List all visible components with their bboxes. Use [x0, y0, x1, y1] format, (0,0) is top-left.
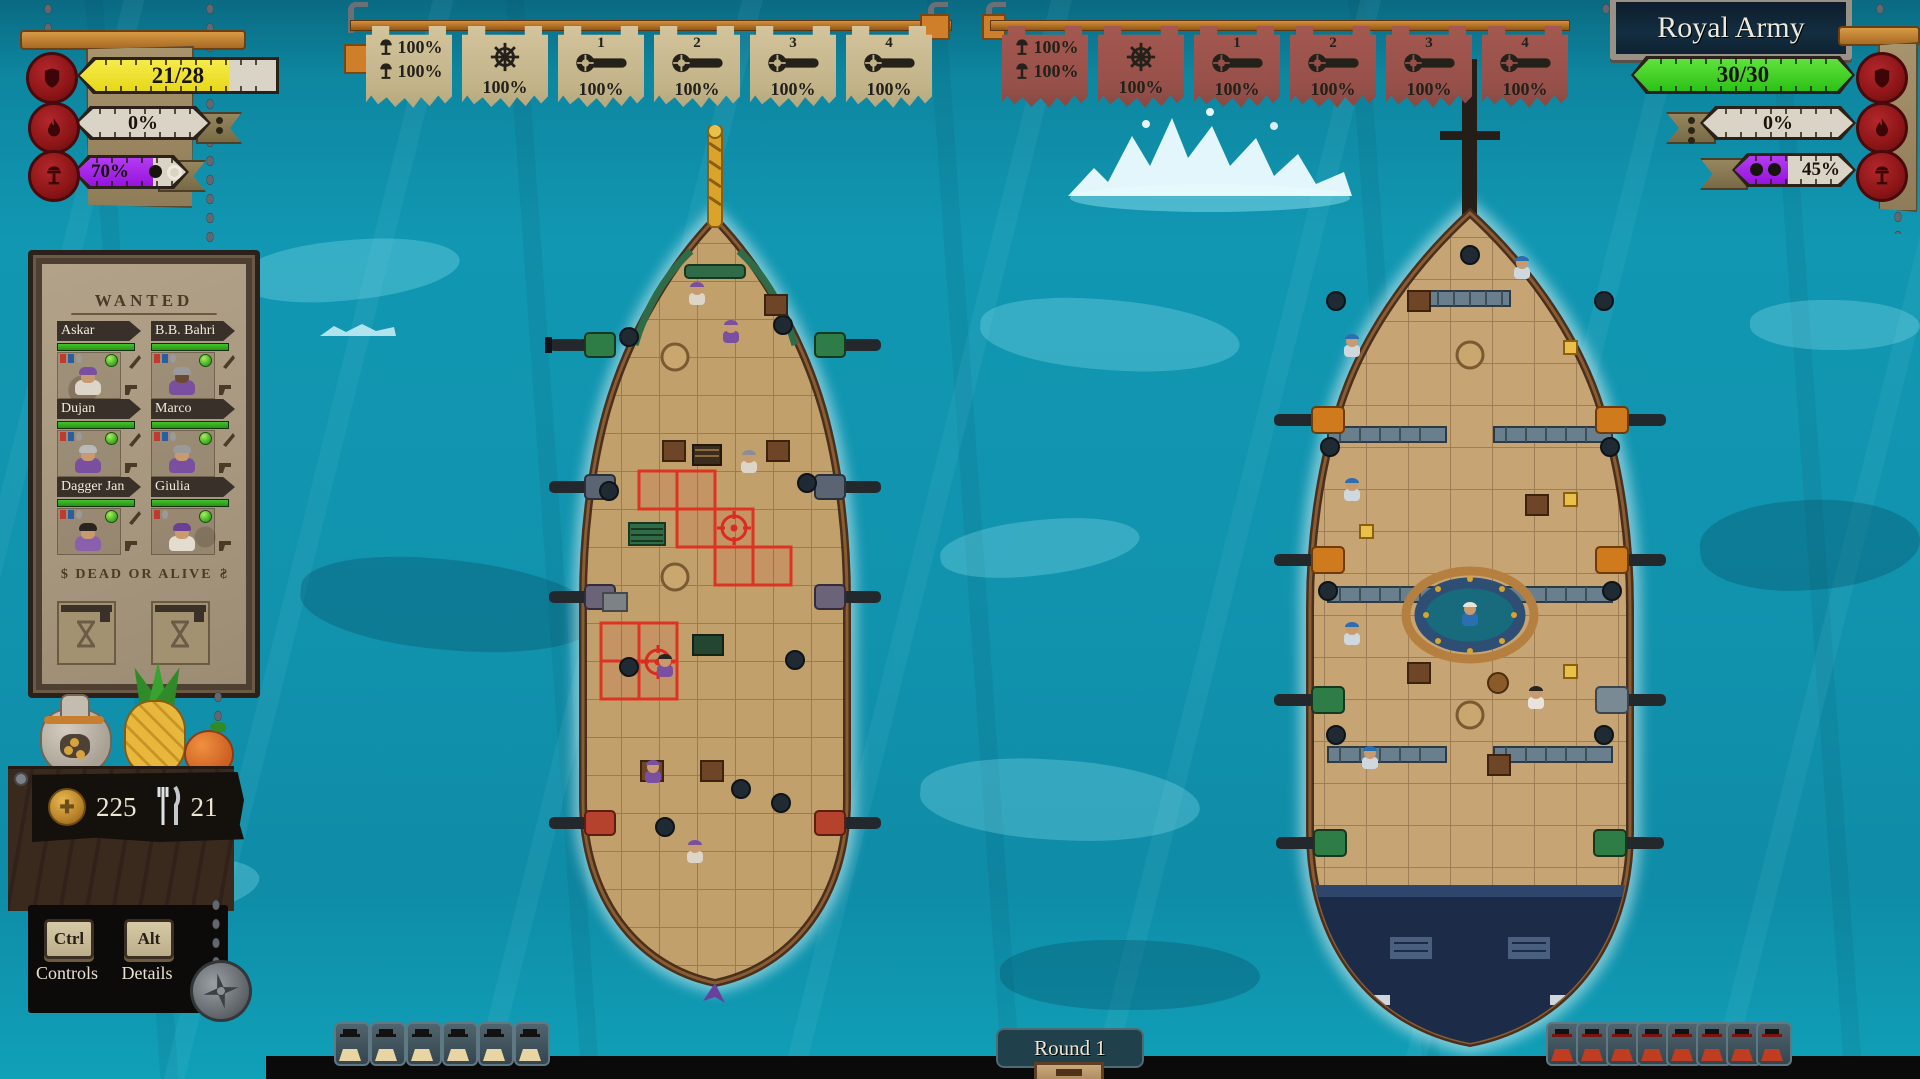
- hull-bar-value: 21/28: [77, 57, 279, 94]
- crew-portrait: [167, 519, 197, 551]
- cannon-icon: [1305, 52, 1361, 74]
- hull-bar-value: 30/30: [1631, 56, 1855, 94]
- crew-hp-bar: [151, 343, 229, 351]
- banner-value: 100%: [1034, 62, 1079, 80]
- compass-rose-icon: [197, 967, 244, 1014]
- game-viewport: 21/28 0% 70% Royal Army: [0, 0, 1920, 1079]
- food-icon: [153, 785, 183, 829]
- ram-pip-filled: [1768, 163, 1781, 176]
- chain: [208, 896, 224, 966]
- cannon-icon: [765, 52, 821, 74]
- empty-bounty-slot: [57, 601, 116, 665]
- mast-icon: [376, 39, 396, 56]
- crew-status-orb: [199, 432, 212, 445]
- crew-weapon-icons: [215, 353, 239, 397]
- crew-portrait: [73, 441, 103, 473]
- pineapple: [118, 666, 188, 774]
- pistol-icon: [219, 385, 231, 395]
- cannon-number: 3: [1386, 35, 1472, 52]
- golden-bowsprit-mast: [708, 125, 722, 227]
- crew-medals: [60, 432, 82, 441]
- bounty-symbol: $: [218, 567, 227, 583]
- player-crew-slot: [406, 1022, 442, 1066]
- crew-card-marco[interactable]: Marco: [151, 399, 241, 475]
- banner-value: 100%: [771, 80, 816, 98]
- fire-bar-value: 0%: [1700, 106, 1856, 140]
- player-hull-bar: 21/28: [77, 57, 279, 94]
- banner-value: 100%: [1503, 80, 1548, 98]
- fire-bar-value: 0%: [75, 106, 211, 140]
- ram-seal-icon: [1856, 150, 1908, 202]
- cannon-number: 1: [1194, 35, 1280, 52]
- wooden-hanger: [20, 30, 246, 50]
- alt-keycap[interactable]: Alt: [124, 919, 174, 959]
- fire-seal-icon: [1856, 102, 1908, 154]
- wanted-title-underline: [71, 313, 217, 315]
- dagger-icon: [129, 511, 141, 525]
- crew-medals: [154, 510, 168, 519]
- shield-seal-icon: [26, 52, 78, 104]
- crew-card-askar[interactable]: Askar: [57, 321, 147, 397]
- banner-value: 100%: [398, 38, 443, 56]
- resource-panel: ✚ 225 21: [32, 772, 244, 842]
- cannon-number: 4: [846, 35, 932, 52]
- banner-value: 100%: [675, 80, 720, 98]
- player-crew-slot: [514, 1022, 550, 1066]
- enemy-faction-sign: Royal Army: [1610, 0, 1852, 60]
- controls-label: Controls: [22, 963, 112, 984]
- cannon-number: 4: [1482, 35, 1568, 52]
- crew-weapon-icons: [121, 353, 145, 397]
- crew-portrait: [73, 519, 103, 551]
- crew-name: B.B. Bahri: [151, 321, 235, 341]
- crew-status-orb: [105, 354, 118, 367]
- command-platform[interactable]: [1406, 571, 1534, 659]
- wanted-board: WANTED Askar B.B. Bahri: [28, 250, 260, 698]
- mast-icon: [1012, 39, 1032, 56]
- crew-name: Askar: [57, 321, 141, 341]
- hourglass-icon: [167, 619, 193, 649]
- cannon-icon: [861, 52, 917, 74]
- player-crew-slot: [370, 1022, 406, 1066]
- cannon-number: 2: [654, 35, 740, 52]
- banner-value: 100%: [483, 78, 528, 96]
- pistol-icon: [125, 385, 137, 395]
- dagger-icon: [129, 355, 141, 369]
- cannon-number: 2: [1290, 35, 1376, 52]
- cannon-icon: [573, 52, 629, 74]
- crew-card-giulia[interactable]: Giulia: [151, 477, 241, 553]
- dagger-icon: [223, 355, 235, 369]
- crew-name: Dujan: [57, 399, 141, 419]
- round-label: Round 1: [1034, 1036, 1106, 1061]
- ram-pip-filled: [149, 165, 162, 178]
- ram-pip-hollow: [167, 165, 182, 180]
- banner-value: 100%: [579, 80, 624, 98]
- crew-medals: [154, 432, 176, 441]
- empty-bounty-slot: [151, 601, 210, 665]
- wanted-title: WANTED: [33, 291, 255, 311]
- treasure-chest[interactable]: [1488, 673, 1508, 693]
- enemy-crew-slot: [1756, 1022, 1792, 1066]
- player-fire-bar: 0%: [75, 106, 211, 140]
- cannon-icon: [669, 52, 725, 74]
- cannon-number: 3: [750, 35, 836, 52]
- crew-medals: [154, 354, 176, 363]
- bolt: [14, 772, 28, 786]
- cannon-icon: [1401, 52, 1457, 74]
- crew-status-orb: [199, 354, 212, 367]
- ram-pip-filled: [1750, 163, 1763, 176]
- crew-card-bb-bahri[interactable]: B.B. Bahri: [151, 321, 241, 397]
- crew-status-orb: [105, 432, 118, 445]
- ctrl-keycap[interactable]: Ctrl: [44, 919, 94, 959]
- machine[interactable]: [603, 593, 627, 611]
- round-table[interactable]: [1457, 702, 1483, 728]
- crew-medals: [60, 510, 82, 519]
- player-crew-slot: [334, 1022, 370, 1066]
- crew-hp-bar: [57, 343, 135, 351]
- pistol-icon: [125, 463, 137, 473]
- player-ram-bar: 70%: [73, 155, 189, 189]
- money-bag: [34, 690, 114, 774]
- banner-value: 100%: [1119, 78, 1164, 96]
- chain: [1872, 0, 1888, 18]
- enemy-hull-bar: 30/30: [1631, 56, 1855, 94]
- banner-value: 100%: [398, 62, 443, 80]
- crew-hp-bar: [151, 499, 229, 507]
- dagger-icon: [129, 433, 141, 447]
- enemy-captain[interactable]: [1462, 602, 1478, 626]
- chain: [40, 0, 56, 34]
- banner-value: 100%: [1034, 38, 1079, 56]
- wheel-icon: [488, 40, 522, 74]
- wheel-icon: [1124, 40, 1158, 74]
- enemy-ram-bar: 45%: [1732, 153, 1856, 187]
- crew-name: Giulia: [151, 477, 235, 497]
- hourglass-icon: [73, 619, 99, 649]
- chain: [1890, 208, 1906, 234]
- wave-patch: [1750, 300, 1920, 350]
- bounty-text: DEAD OR ALIVE: [75, 567, 212, 582]
- round-tab[interactable]: [1034, 1062, 1104, 1079]
- stairwell[interactable]: [693, 635, 723, 655]
- banner-value: 100%: [1215, 80, 1260, 98]
- crew-hp-bar: [57, 421, 135, 429]
- crew-medals: [60, 354, 82, 363]
- crew-weapon-icons: [121, 431, 145, 475]
- mast-icon: [1012, 63, 1032, 80]
- enemy-fire-bar: 0%: [1700, 106, 1856, 140]
- dead-or-alive-label: $ DEAD OR ALIVE $: [33, 567, 255, 583]
- crew-card-dagger-jan[interactable]: Dagger Jan: [57, 477, 147, 553]
- pistol-icon: [125, 541, 137, 551]
- gold-coin-icon: ✚: [48, 788, 86, 826]
- round-table[interactable]: [662, 564, 688, 590]
- crew-portrait: [73, 363, 103, 395]
- round-table[interactable]: [1457, 342, 1483, 368]
- player-crew-slot: [442, 1022, 478, 1066]
- player-crew-slot: [478, 1022, 514, 1066]
- cannon-icon: [1497, 52, 1553, 74]
- banner-value: 100%: [1311, 80, 1356, 98]
- gold-amount: 225: [96, 792, 137, 823]
- crew-status-orb: [199, 510, 212, 523]
- crew-status-orb: [105, 510, 118, 523]
- crew-card-dujan[interactable]: Dujan: [57, 399, 147, 475]
- enemy-ship[interactable]: [1240, 55, 1700, 1065]
- cannon-icon: [1209, 52, 1265, 74]
- banner-value: 100%: [1407, 80, 1452, 98]
- pistol-icon: [219, 463, 231, 473]
- crew-weapon-icons: [215, 431, 239, 475]
- crew-name: Dagger Jan: [57, 477, 141, 497]
- shield-seal-icon: [1856, 52, 1908, 104]
- ram-seal-icon: [28, 150, 80, 202]
- crew-portrait: [167, 363, 197, 395]
- player-ship[interactable]: [545, 125, 885, 1005]
- crew-weapon-icons: [121, 509, 145, 553]
- fire-seal-icon: [28, 102, 80, 154]
- bow-bench: [685, 265, 745, 278]
- crew-name: Marco: [151, 399, 235, 419]
- round-table[interactable]: [662, 344, 688, 370]
- crew-portrait: [167, 441, 197, 473]
- details-label: Details: [102, 963, 192, 984]
- crew-hp-bar: [151, 421, 229, 429]
- pistol-icon: [219, 541, 231, 551]
- small-splash: [318, 318, 398, 342]
- banner-value: 100%: [867, 80, 912, 98]
- wave-patch: [1000, 940, 1260, 1010]
- dagger-icon: [223, 433, 235, 447]
- crew-hp-bar: [57, 499, 135, 507]
- cannon-number: 1: [558, 35, 644, 52]
- bounty-symbol: $: [61, 567, 70, 582]
- food-amount: 21: [191, 792, 218, 823]
- crew-weapon-icons: [215, 509, 239, 553]
- enemy-faction-title: Royal Army: [1657, 11, 1805, 45]
- mast-icon: [376, 63, 396, 80]
